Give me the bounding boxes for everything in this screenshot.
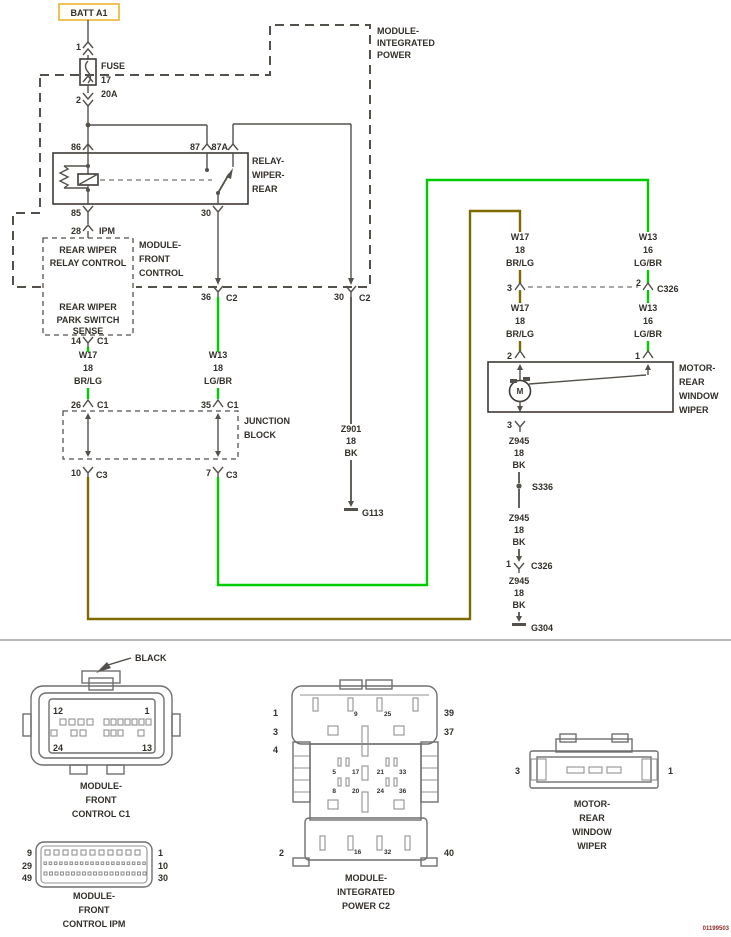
- relay-pin-85: 85: [71, 208, 81, 218]
- wire-w13c-gauge: 16: [643, 316, 653, 326]
- module-fc-label: CONTROL: [139, 268, 184, 278]
- splice-s336: S336: [532, 482, 553, 492]
- wire-w17c: W17: [511, 303, 530, 313]
- c326-pin3-icon: [515, 283, 525, 290]
- c2-pin-33: 33: [399, 769, 407, 776]
- pin-7-connector: C3: [226, 470, 238, 480]
- fuse-pin1-icon: [83, 42, 93, 55]
- ipm-conn-pin-1: 1: [158, 848, 163, 858]
- motor-conn-slots: [567, 767, 621, 773]
- motor-pin-3: 3: [507, 420, 512, 430]
- pin35-icon: [213, 400, 223, 407]
- fuse-number: 17: [101, 75, 111, 85]
- motor-label: WINDOW: [679, 391, 719, 401]
- wires-to-junction: W17 18 BR/LG W13 18 LG/BR: [74, 297, 232, 399]
- ipm-conn-caption: FRONT: [79, 905, 110, 915]
- pin-36-connector: C2: [226, 293, 238, 303]
- c1-pin-1: 1: [144, 706, 149, 716]
- wire-w17a: W17: [79, 350, 98, 360]
- wire-w17a-gauge: 18: [83, 363, 93, 373]
- c2-caption: MODULE-: [345, 873, 387, 883]
- park-switch-label: PARK SWITCH: [57, 315, 120, 325]
- relay-control-label: RELAY CONTROL: [50, 258, 127, 268]
- c2-pin-37: 37: [444, 727, 454, 737]
- battery-feed: BATT A1 1 FUSE 17 20A 2: [59, 4, 351, 278]
- c2-pin-40: 40: [444, 848, 454, 858]
- motor-pin-1: 1: [635, 351, 640, 361]
- ipm-conn-caption: MODULE-: [73, 891, 115, 901]
- c2-pin-9: 9: [354, 711, 358, 718]
- ipm-conn-pin-9: 9: [27, 848, 32, 858]
- wiring-diagram-page: MODULE- INTEGRATED POWER BATT A1 1 FUSE …: [0, 0, 731, 937]
- c2-pin-16: 16: [354, 849, 362, 856]
- ground-icon: [512, 623, 526, 626]
- module-fc-label: MODULE-: [139, 240, 181, 250]
- c2-pin-5: 5: [332, 769, 336, 776]
- relay-pin-87a: 87A: [211, 142, 228, 152]
- c2-pin-24: 24: [377, 788, 385, 795]
- c2-pin-21: 21: [377, 769, 385, 776]
- pin-14-connector: C1: [97, 336, 109, 346]
- pin-35-connector: C1: [227, 400, 239, 410]
- switch-arrow-icon: [226, 168, 233, 179]
- motor-label: WIPER: [679, 405, 709, 415]
- c1-pin-12: 12: [53, 706, 63, 716]
- wire-w13b: W13: [639, 232, 658, 242]
- wire-w17b: W17: [511, 232, 530, 242]
- ground-g113: G113: [362, 508, 384, 518]
- boundary-pin-icon: [83, 76, 93, 82]
- ground-z945-chain: Z945 18 BK S336 Z945 18 BK 1 C326 Z945 1…: [506, 436, 553, 633]
- junction-label: JUNCTION: [244, 416, 290, 426]
- motor-conn-caption: MOTOR-: [574, 799, 610, 809]
- connector-module-front-control-ipm: 9 29 49 1 10 30 MODULE- FRONT CONTROL IP…: [22, 842, 168, 929]
- c326-area: W17 18 BR/LG W13 16 LG/BR 3 2 C326 W17 1…: [506, 232, 679, 351]
- motor-pin2-icon: [515, 351, 525, 358]
- wire-w17c-color: BR/LG: [506, 329, 534, 339]
- pin-35: 35: [201, 400, 211, 410]
- wire-w13-run: [218, 180, 648, 585]
- c2-pin-20: 20: [352, 788, 360, 795]
- wire-w13a-gauge: 18: [213, 363, 223, 373]
- pin-10: 10: [71, 468, 81, 478]
- motor-conn-caption: WINDOW: [572, 827, 612, 837]
- fuse-amps: 20A: [101, 89, 118, 99]
- pin-30-connector: C2: [359, 293, 371, 303]
- c326-pin-3: 3: [507, 283, 512, 293]
- c2-pin-36: 36: [399, 788, 407, 795]
- c326-pin2-icon: [643, 283, 653, 290]
- fuse-name: FUSE: [101, 61, 125, 71]
- wire-z945c: Z945: [509, 576, 530, 586]
- module-ip-label: MODULE-: [377, 26, 419, 36]
- resistor-icon: [60, 166, 68, 188]
- c2-pin-4: 4: [273, 745, 278, 755]
- park-switch-label: REAR WIPER: [59, 302, 117, 312]
- module-ip-label: POWER: [377, 50, 412, 60]
- ipm-conn-pins: [44, 850, 146, 875]
- relay-body: [53, 153, 248, 204]
- fuse-pin2-icon: [83, 93, 93, 106]
- motor-label: MOTOR-: [679, 363, 715, 373]
- motor-conn-pin-3: 3: [515, 766, 520, 776]
- motor-conn-caption: WIPER: [577, 841, 607, 851]
- wire-w13b-color: LG/BR: [634, 258, 662, 268]
- c2-pin-8: 8: [332, 788, 336, 795]
- pin36-icon: [213, 286, 223, 297]
- module-fc-label: FRONT: [139, 254, 170, 264]
- ipm-pin-icon: [83, 225, 93, 231]
- relay-pin-87: 87: [190, 142, 200, 152]
- connector-module-integrated-power-c2: 1 3 4 39 37 2 40 9 25 5 17 21 33 8 20 24…: [273, 680, 454, 911]
- relay-label: REAR: [252, 184, 278, 194]
- wire-z901-color: BK: [345, 448, 358, 458]
- arrow-down-icon: [215, 278, 221, 285]
- wire-z945b-gauge: 18: [514, 525, 524, 535]
- rear-wiper-wiring-diagram: MODULE- INTEGRATED POWER BATT A1 1 FUSE …: [0, 0, 731, 937]
- pin-26: 26: [71, 400, 81, 410]
- motor-conn-caption: REAR: [579, 813, 605, 823]
- c326-name2: C326: [531, 561, 553, 571]
- wire-z901: Z901: [341, 424, 362, 434]
- connector-motor-rear-window-wiper: 3 1 MOTOR- REAR WINDOW WIPER: [515, 734, 673, 851]
- junction-block: 26 C1 35 C1 JUNCTION BLOCK 10 C3 7 C3: [63, 400, 290, 480]
- wire-z945c-color: BK: [513, 600, 526, 610]
- ipm-conn-pin-10: 10: [158, 861, 168, 871]
- pin-30: 30: [334, 292, 344, 302]
- relay-label: RELAY-: [252, 156, 284, 166]
- wire-z945b-color: BK: [513, 537, 526, 547]
- diagram-code: 01199503: [703, 926, 730, 932]
- pin14-icon: [83, 337, 93, 347]
- relay-pin-86: 86: [71, 142, 81, 152]
- park-switch-label: SENSE: [73, 326, 104, 336]
- pin26-icon: [83, 400, 93, 407]
- pin7-icon: [213, 467, 223, 477]
- wire-z945a-color: BK: [513, 460, 526, 470]
- pin-7: 7: [206, 468, 211, 478]
- c326-name: C326: [657, 284, 679, 294]
- motor-pin-2: 2: [507, 351, 512, 361]
- ground-g304: G304: [531, 623, 553, 633]
- junction-label: BLOCK: [244, 430, 276, 440]
- wire-z945b: Z945: [509, 513, 530, 523]
- c1-caption: CONTROL C1: [72, 809, 130, 819]
- motor-label: REAR: [679, 377, 705, 387]
- c2-pin-3: 3: [273, 727, 278, 737]
- ipm-pin-28: 28: [71, 226, 81, 236]
- motor-m: M: [517, 387, 524, 396]
- pin-26-connector: C1: [97, 400, 109, 410]
- c2-pin-32: 32: [384, 849, 392, 856]
- relay-pin-30: 30: [201, 208, 211, 218]
- batt-a1-label: BATT A1: [71, 8, 108, 18]
- ground-icon: [344, 508, 358, 511]
- wire-w17b-color: BR/LG: [506, 258, 534, 268]
- wire-z945c-gauge: 18: [514, 588, 524, 598]
- motor-rear-window-wiper: 2 1 M MOTOR- REAR WINDOW WIPER 3: [488, 351, 719, 432]
- c1-pin-13: 13: [142, 743, 152, 753]
- relay-control-label: REAR WIPER: [59, 245, 117, 255]
- relay-label: WIPER-: [252, 170, 285, 180]
- ipm-name: IPM: [99, 226, 115, 236]
- c326-pin1-icon: [514, 563, 524, 573]
- pin-10-connector: C3: [96, 470, 108, 480]
- ipm-conn-pin-30: 30: [158, 873, 168, 883]
- motor-pin3-icon: [515, 421, 525, 432]
- c2-pin-2: 2: [279, 848, 284, 858]
- wire-z945a-gauge: 18: [514, 448, 524, 458]
- relay-pin30-icon: [213, 206, 223, 216]
- c2-lower-shell: [305, 818, 427, 860]
- wire-z901-gauge: 18: [346, 436, 356, 446]
- c1-pin-24: 24: [53, 743, 63, 753]
- c2-pin-39: 39: [444, 708, 454, 718]
- c1-pin-cavities: [51, 719, 151, 736]
- ipm-conn-pin-29: 29: [22, 861, 32, 871]
- ipm-conn-caption: CONTROL IPM: [63, 919, 126, 929]
- c2-caption: POWER C2: [342, 901, 390, 911]
- wire-z945a: Z945: [509, 436, 530, 446]
- pin10-icon: [83, 467, 93, 477]
- wire-w13c-color: LG/BR: [634, 329, 662, 339]
- ipm-conn-pin-49: 49: [22, 873, 32, 883]
- connector-module-front-control-c1: BLACK 12 1 24 13 MODULE- FRONT CONTROL C…: [23, 653, 180, 819]
- pin-14: 14: [71, 336, 81, 346]
- fuse-pin1: 1: [76, 42, 81, 52]
- c2-pin-1: 1: [273, 708, 278, 718]
- c2-pin-25: 25: [384, 711, 392, 718]
- c1-caption: FRONT: [86, 795, 117, 805]
- motor-conn-pin-1: 1: [668, 766, 673, 776]
- c2-caption: INTEGRATED: [337, 887, 395, 897]
- wire-w13a: W13: [209, 350, 228, 360]
- module-ip-label: INTEGRATED: [377, 38, 435, 48]
- fuse-pin2: 2: [76, 95, 81, 105]
- relay-pin85-icon: [83, 206, 93, 216]
- wire-w13a-color: LG/BR: [204, 376, 232, 386]
- connector-color-label: BLACK: [135, 653, 167, 663]
- c326-pin-2: 2: [636, 278, 641, 288]
- c2-pin-17: 17: [352, 769, 360, 776]
- wire-w17b-gauge: 18: [515, 245, 525, 255]
- splice-s336-icon: [516, 483, 521, 488]
- wire-w13c: W13: [639, 303, 658, 313]
- wire-w17a-color: BR/LG: [74, 376, 102, 386]
- wire-w17c-gauge: 18: [515, 316, 525, 326]
- motor-pin1-icon: [643, 351, 653, 358]
- ground-z901: Z901 18 BK G113: [341, 297, 384, 518]
- c1-caption: MODULE-: [80, 781, 122, 791]
- wire-w13b-gauge: 16: [643, 245, 653, 255]
- pin-36: 36: [201, 292, 211, 302]
- arrow-down-icon: [348, 278, 354, 285]
- c326-pin-1: 1: [506, 559, 511, 569]
